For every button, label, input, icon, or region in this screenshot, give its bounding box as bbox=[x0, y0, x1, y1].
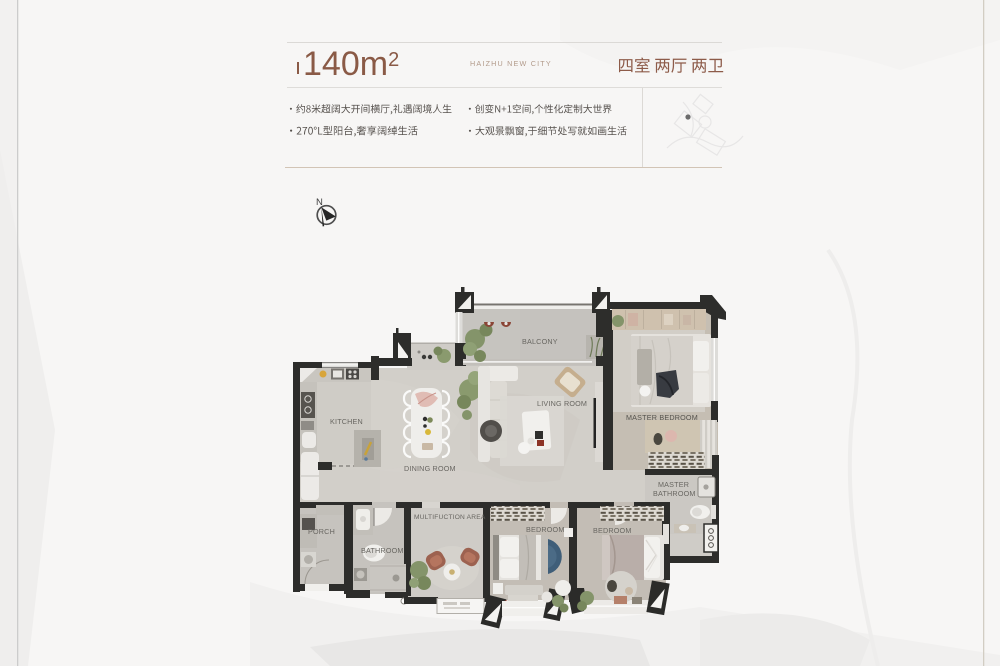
svg-text:MASTER BEDROOM: MASTER BEDROOM bbox=[626, 413, 698, 422]
svg-text:BATHROOM: BATHROOM bbox=[361, 546, 404, 555]
svg-text:MULTIFUCTION AREA: MULTIFUCTION AREA bbox=[414, 514, 486, 521]
svg-text:LIVING ROOM: LIVING ROOM bbox=[537, 399, 587, 408]
svg-text:BATHROOM: BATHROOM bbox=[653, 489, 696, 498]
svg-text:BEDROOM: BEDROOM bbox=[526, 525, 565, 534]
svg-text:PORCH: PORCH bbox=[308, 527, 335, 536]
svg-text:BEDROOM: BEDROOM bbox=[593, 526, 632, 535]
svg-text:KITCHEN: KITCHEN bbox=[330, 417, 363, 426]
svg-text:MASTER: MASTER bbox=[658, 480, 689, 489]
svg-text:DINING ROOM: DINING ROOM bbox=[404, 464, 456, 473]
svg-text:BALCONY: BALCONY bbox=[522, 337, 558, 346]
